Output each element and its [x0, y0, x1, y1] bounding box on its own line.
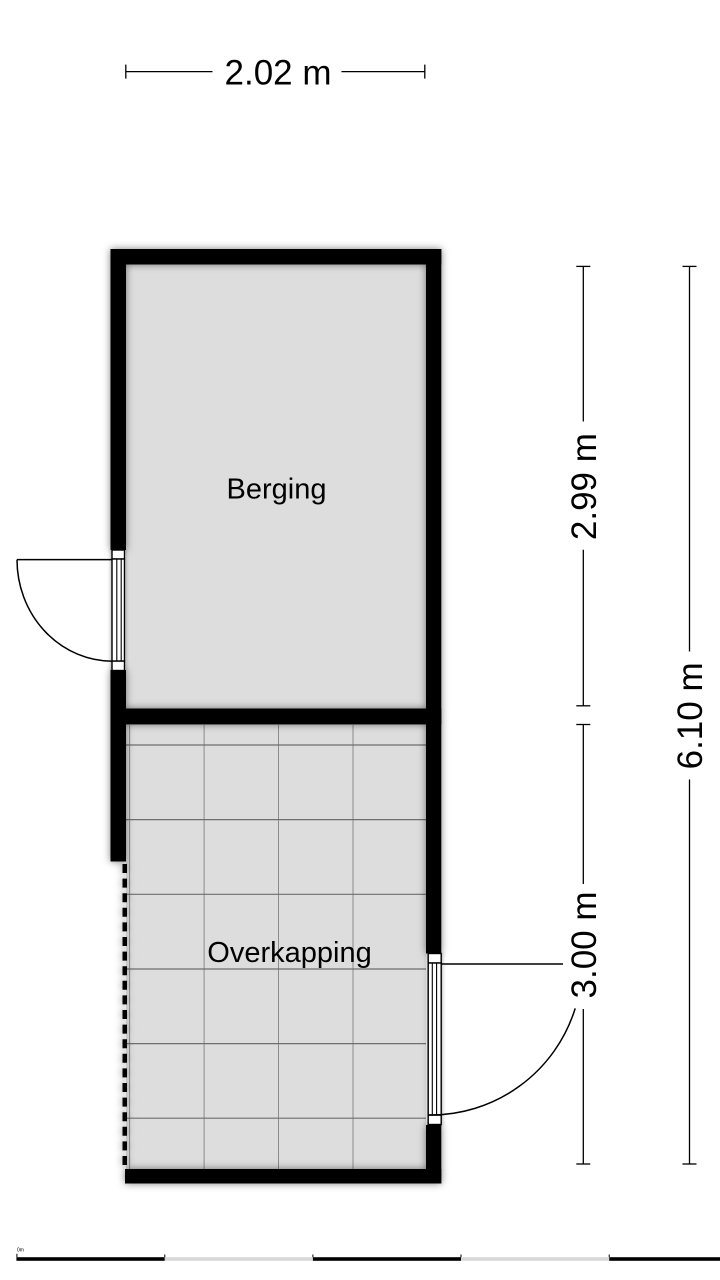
svg-text:6.10 m: 6.10 m	[671, 662, 710, 769]
svg-text:Berging: Berging	[227, 473, 327, 505]
svg-text:2.99 m: 2.99 m	[565, 433, 604, 540]
svg-text:0m: 0m	[17, 1248, 24, 1254]
svg-text:3.00 m: 3.00 m	[565, 892, 604, 999]
svg-text:2.02 m: 2.02 m	[225, 53, 332, 92]
svg-text:Overkapping: Overkapping	[207, 937, 371, 969]
